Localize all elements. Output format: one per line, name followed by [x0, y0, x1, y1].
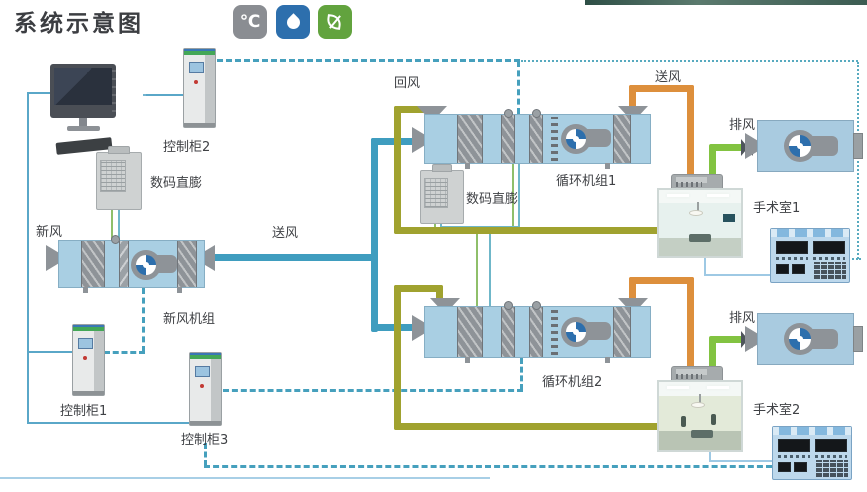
control-cabinet-3 — [189, 352, 222, 426]
circulation-unit-1 — [424, 114, 651, 164]
digital-dx-2-label: 数码直膨 — [466, 188, 518, 207]
supply-pipe-riser — [371, 138, 378, 332]
digital-dx-condenser-1 — [96, 152, 142, 210]
supply-duct1 — [687, 85, 694, 178]
control-line-cabinet3-rise — [520, 358, 523, 390]
cu1-inlet-flange — [412, 127, 424, 153]
circulation-unit-2 — [424, 306, 651, 358]
fresh-air-unit-label: 新风机组 — [163, 308, 215, 327]
system-diagram: 系统示意图 ℃ — [0, 0, 867, 492]
network-line — [143, 94, 183, 96]
network-line — [27, 351, 73, 353]
fresh-air-label: 新风 — [36, 221, 62, 240]
supply-air-main-label: 送风 — [272, 222, 298, 241]
water-drop-glyph — [284, 13, 302, 31]
control-cabinet-1 — [72, 324, 105, 396]
control-line-cabinet1 — [104, 351, 145, 354]
exfan2-outlet-flange — [853, 326, 863, 352]
exfan1-outlet-flange — [853, 133, 863, 159]
supply-duct1 — [629, 85, 694, 92]
cu2-inlet-flange — [412, 315, 424, 341]
supply-duct2 — [629, 277, 694, 284]
control-cabinet-1-label: 控制柜1 — [60, 400, 107, 419]
control-cabinet-2-label: 控制柜2 — [163, 136, 210, 155]
control-cabinet-3-label: 控制柜3 — [181, 429, 228, 448]
fresh-air-unit — [58, 240, 205, 288]
bottom-accent-line — [0, 477, 490, 479]
humidity-icon — [276, 5, 310, 39]
page-title: 系统示意图 — [14, 4, 144, 38]
exfan1-inlet-flange — [745, 133, 757, 159]
control-line-cabinet3 — [223, 389, 523, 392]
exhaust-fan-1 — [757, 120, 854, 172]
return-pipe-room2 — [394, 423, 660, 430]
panel2-link-line — [709, 460, 774, 462]
exhaust-air-room2-label: 排风 — [729, 307, 755, 326]
return-pipe-riser2 — [394, 285, 401, 430]
operating-room-1-photo — [657, 188, 743, 258]
eco-icon — [318, 5, 352, 39]
refrigerant-line — [476, 230, 478, 306]
top-photo-strip — [585, 0, 867, 5]
control-line-to-panel2 — [204, 465, 772, 468]
exfan2-inlet-flange — [745, 326, 757, 352]
operating-room-2-photo — [657, 380, 743, 452]
network-line — [27, 422, 189, 424]
temperature-icon: ℃ — [233, 5, 267, 39]
circulation-unit-1-label: 循环机组1 — [556, 170, 616, 189]
control-line-cabinet1-rise — [142, 288, 145, 352]
digital-dx-1-label: 数码直膨 — [150, 172, 202, 191]
refrigerant-line — [518, 164, 520, 226]
supply-pipe-main — [207, 254, 375, 261]
temperature-glyph: ℃ — [240, 12, 261, 32]
operating-room-1-label: 手术室1 — [753, 197, 800, 216]
control-line-to-panel1 — [521, 60, 858, 62]
operator-monitor — [50, 64, 116, 118]
room1-wall-panel — [770, 228, 850, 283]
panel1-link-line — [704, 256, 706, 276]
exhaust-air-room1-label: 排风 — [729, 114, 755, 133]
leaf-glyph — [326, 13, 344, 31]
circulation-unit-2-label: 循环机组2 — [542, 371, 602, 390]
supply-air-room1-label: 送风 — [655, 66, 681, 85]
digital-dx-condenser-2 — [420, 170, 464, 224]
fau-inlet-flange — [46, 245, 58, 271]
control-line-cabinet2-drop — [517, 61, 520, 114]
panel1-link-line — [704, 274, 770, 276]
return-pipe-riser1 — [394, 106, 401, 234]
exhaust-fan-2 — [757, 313, 854, 365]
operating-room-2-label: 手术室2 — [753, 399, 800, 418]
control-line-cabinet2 — [217, 59, 520, 62]
network-line — [27, 92, 29, 424]
return-air-label: 回风 — [394, 72, 420, 91]
supply-duct2 — [687, 277, 694, 368]
control-line-to-panel1-drop — [857, 62, 859, 259]
return-pipe-into-unit2-stub — [436, 285, 443, 300]
refrigerant-line — [489, 226, 491, 306]
room2-wall-panel — [772, 426, 852, 480]
control-cabinet-2 — [183, 48, 216, 128]
return-pipe-room1 — [394, 227, 660, 234]
